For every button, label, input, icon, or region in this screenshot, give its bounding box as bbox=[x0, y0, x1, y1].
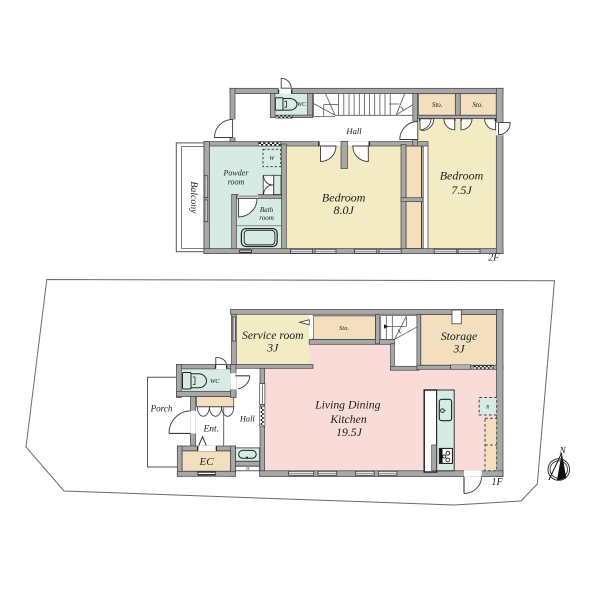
svg-text:N: N bbox=[559, 446, 567, 456]
svg-text:19.5J: 19.5J bbox=[336, 426, 362, 439]
svg-text:Bath: Bath bbox=[260, 206, 274, 214]
svg-text:R: R bbox=[485, 406, 489, 411]
svg-text:Sto.: Sto. bbox=[472, 101, 483, 109]
svg-text:Powder: Powder bbox=[223, 169, 250, 178]
svg-text:WC: WC bbox=[210, 378, 220, 385]
svg-text:Service room: Service room bbox=[242, 329, 304, 342]
svg-text:1F: 1F bbox=[491, 477, 503, 488]
svg-text:Hall: Hall bbox=[345, 126, 362, 136]
svg-text:Living Dining: Living Dining bbox=[314, 399, 380, 412]
svg-text:Porch: Porch bbox=[150, 403, 173, 413]
svg-text:room: room bbox=[259, 214, 274, 222]
svg-text:Balcony: Balcony bbox=[188, 181, 199, 214]
svg-text:EC: EC bbox=[198, 456, 214, 468]
svg-text:2F: 2F bbox=[488, 252, 500, 263]
svg-text:room: room bbox=[228, 178, 245, 187]
svg-text:WC: WC bbox=[297, 102, 307, 108]
svg-text:7.5J: 7.5J bbox=[451, 183, 472, 197]
svg-text:Kitchen: Kitchen bbox=[329, 413, 367, 426]
svg-text:Bedroom: Bedroom bbox=[440, 169, 484, 183]
svg-text:Hall: Hall bbox=[239, 415, 256, 424]
svg-text:3J: 3J bbox=[452, 343, 465, 356]
svg-text:3J: 3J bbox=[266, 342, 279, 355]
svg-text:Ent.: Ent. bbox=[203, 425, 220, 435]
svg-text:Sto.: Sto. bbox=[339, 325, 349, 332]
svg-text:Sto.: Sto. bbox=[432, 101, 443, 109]
svg-text:8.0J: 8.0J bbox=[334, 203, 355, 217]
svg-text:Storage: Storage bbox=[441, 330, 477, 343]
svg-text:JS: JS bbox=[246, 466, 250, 471]
